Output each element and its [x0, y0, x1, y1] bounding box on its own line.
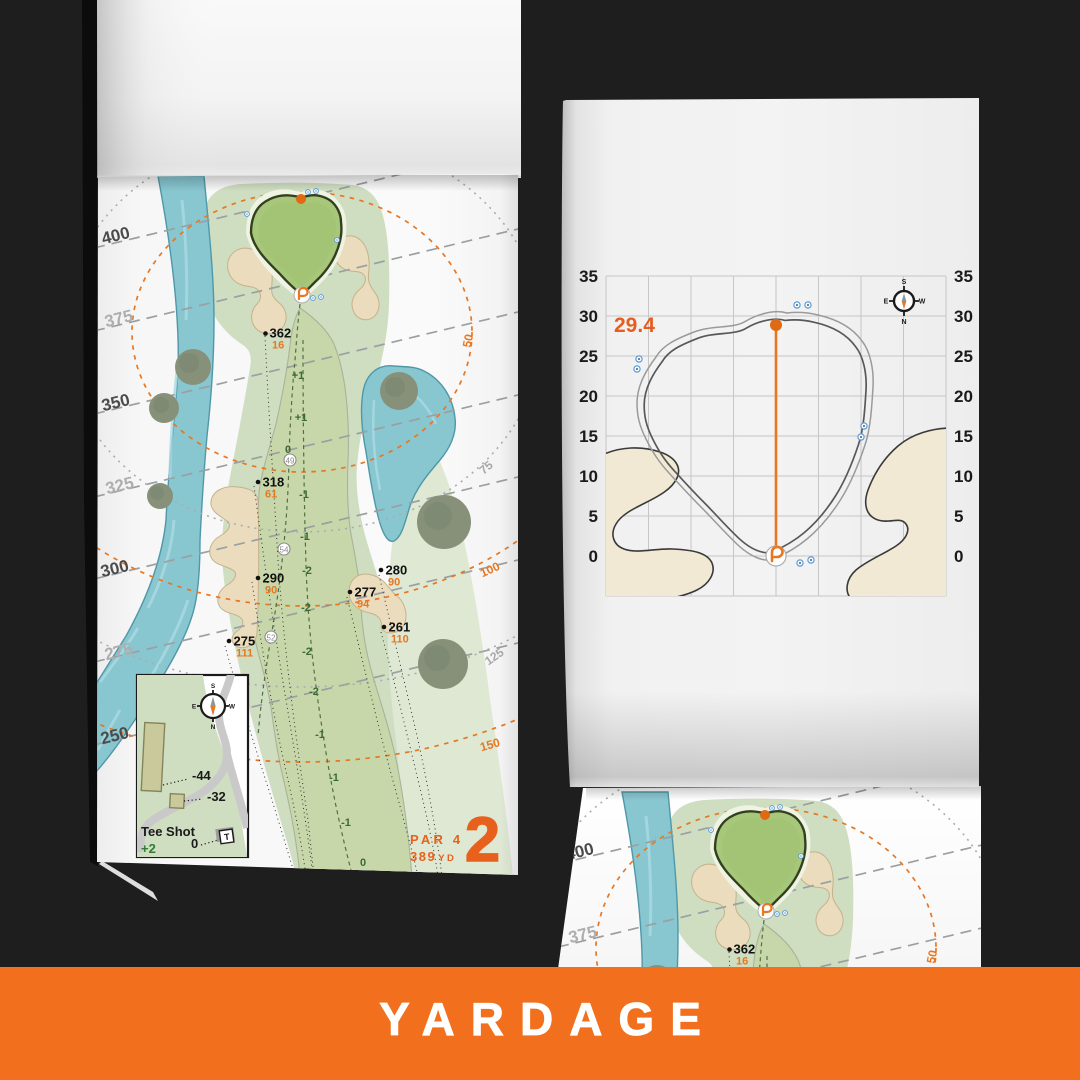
svg-text:30: 30 — [579, 307, 598, 326]
svg-text:25: 25 — [954, 347, 973, 366]
svg-text:15: 15 — [579, 427, 598, 446]
svg-text:35: 35 — [579, 267, 598, 286]
svg-text:W: W — [919, 299, 926, 306]
svg-text:10: 10 — [579, 467, 598, 486]
svg-text:5: 5 — [589, 507, 598, 526]
svg-text:25: 25 — [579, 347, 598, 366]
svg-text:20: 20 — [954, 387, 973, 406]
svg-text:15: 15 — [954, 427, 973, 446]
svg-text:0: 0 — [954, 547, 963, 566]
svg-text:20: 20 — [579, 387, 598, 406]
svg-text:S: S — [902, 279, 907, 286]
svg-text:YARDAGE: YARDAGE — [379, 993, 717, 1045]
svg-text:N: N — [901, 319, 906, 326]
svg-text:10: 10 — [954, 467, 973, 486]
svg-text:29.4: 29.4 — [614, 314, 655, 337]
svg-text:0: 0 — [589, 547, 598, 566]
svg-text:5: 5 — [954, 507, 963, 526]
svg-text:35: 35 — [954, 267, 973, 286]
svg-text:30: 30 — [954, 307, 973, 326]
svg-text:E: E — [884, 299, 889, 306]
